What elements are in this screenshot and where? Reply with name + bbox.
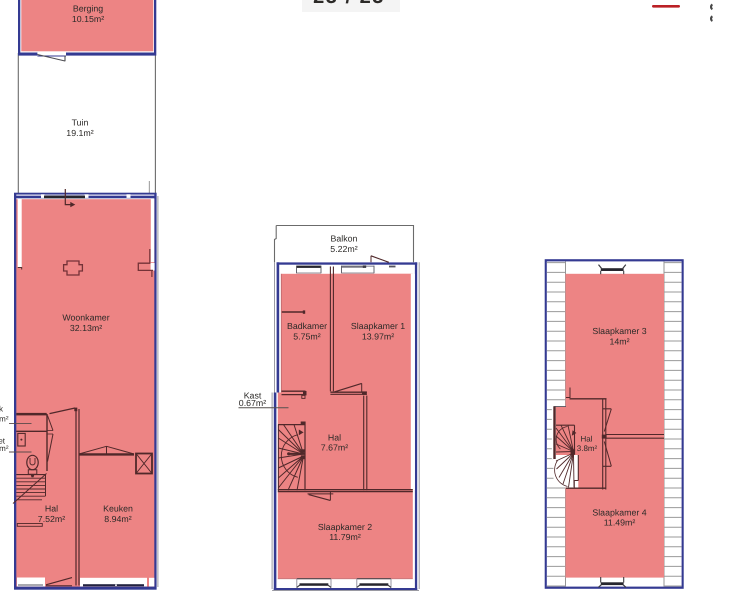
svg-text:7.52m²: 7.52m² — [38, 514, 65, 524]
svg-text:Badkamer: Badkamer — [287, 321, 327, 331]
svg-text:7.67m²: 7.67m² — [321, 443, 348, 453]
svg-text:0.67m²: 0.67m² — [239, 398, 266, 408]
svg-text:Hal: Hal — [328, 432, 341, 442]
svg-text:3.8m²: 3.8m² — [577, 444, 598, 453]
svg-text:8.94m²: 8.94m² — [104, 514, 131, 524]
svg-text:m²: m² — [0, 444, 9, 453]
svg-text:Slaapkamer 1: Slaapkamer 1 — [351, 321, 405, 331]
svg-text:Slaapkamer 3: Slaapkamer 3 — [592, 326, 646, 336]
svg-text:Tuin: Tuin — [72, 118, 89, 128]
svg-text:m²: m² — [0, 415, 9, 424]
svg-text:Slaapkamer 2: Slaapkamer 2 — [318, 522, 372, 532]
svg-text:11.79m²: 11.79m² — [329, 532, 361, 542]
svg-text:14m²: 14m² — [609, 336, 629, 346]
svg-text:32.13m²: 32.13m² — [70, 323, 102, 333]
svg-text:Berging: Berging — [73, 4, 103, 14]
svg-text:Slaapkamer 4: Slaapkamer 4 — [592, 508, 646, 518]
svg-text:Balkon: Balkon — [331, 234, 358, 244]
svg-text:13.97m²: 13.97m² — [362, 331, 394, 341]
svg-text:Hal: Hal — [45, 504, 58, 514]
svg-text:10.15m²: 10.15m² — [72, 14, 104, 24]
svg-text:5.75m²: 5.75m² — [293, 331, 320, 341]
svg-text:11.49m²: 11.49m² — [604, 518, 636, 528]
svg-text:23 / 23: 23 / 23 — [313, 0, 385, 8]
svg-text:19.1m²: 19.1m² — [66, 128, 93, 138]
svg-text:5.22m²: 5.22m² — [330, 244, 357, 254]
svg-text:Woonkamer: Woonkamer — [62, 313, 109, 323]
svg-text:Hal: Hal — [580, 434, 592, 443]
svg-text:Keuken: Keuken — [103, 504, 133, 514]
